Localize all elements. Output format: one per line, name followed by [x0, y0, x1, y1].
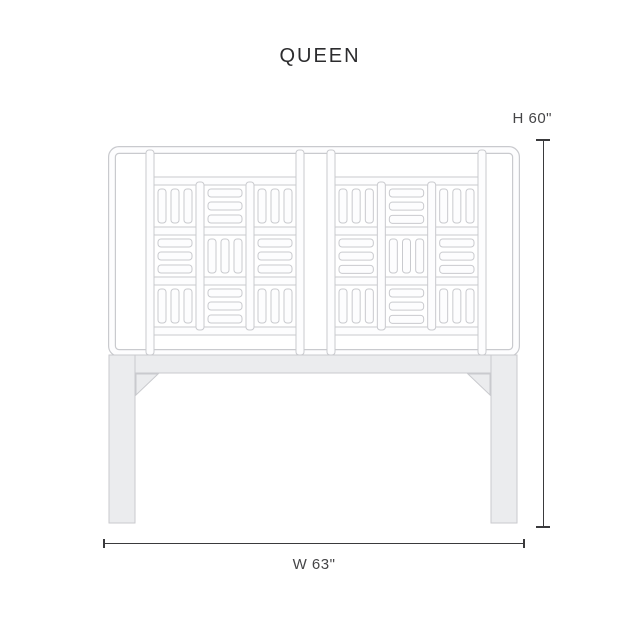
fretwork-bar-vertical — [234, 239, 242, 273]
fretwork-bar-horizontal — [440, 252, 474, 260]
panel-divider-vertical — [428, 182, 436, 330]
vertical-stile — [296, 150, 304, 355]
width-label: W 63" — [104, 556, 524, 573]
height-label: H 60" — [452, 110, 552, 127]
fretwork-bar-vertical — [184, 289, 192, 323]
panel-divider-horizontal — [333, 277, 480, 285]
fretwork-bar-horizontal — [158, 252, 192, 260]
fretwork-bar-vertical — [158, 289, 166, 323]
fretwork-bar-vertical — [339, 189, 347, 223]
fretwork-bar-horizontal — [389, 289, 423, 297]
apron-rail — [109, 355, 517, 373]
vertical-stile — [478, 150, 486, 355]
fretwork-bar-vertical — [389, 239, 397, 273]
fretwork-bar-horizontal — [208, 189, 242, 197]
fretwork-bar-vertical — [453, 289, 461, 323]
fretwork-bar-horizontal — [339, 265, 373, 273]
fretwork-bar-horizontal — [258, 265, 292, 273]
fretwork-bar-vertical — [352, 189, 360, 223]
panel-divider-horizontal — [152, 277, 298, 285]
right-leg — [491, 355, 517, 523]
panel-divider-vertical — [246, 182, 254, 330]
fretwork-bar-horizontal — [208, 215, 242, 223]
fretwork-bar-horizontal — [258, 252, 292, 260]
fretwork-bar-horizontal — [389, 215, 423, 223]
fretwork-bar-vertical — [208, 239, 216, 273]
fretwork-bar-vertical — [271, 189, 279, 223]
headboard-drawing — [0, 0, 640, 640]
fretwork-bar-horizontal — [208, 315, 242, 323]
size-diagram-page: QUEEN H 60" W 63" — [0, 0, 640, 640]
fretwork-bar-horizontal — [339, 239, 373, 247]
width-dimension-tick-left — [103, 539, 105, 548]
vertical-stile — [146, 150, 154, 355]
corner-brace-right — [468, 374, 490, 395]
panel-bottom-rail — [149, 327, 301, 335]
fretwork-bar-horizontal — [158, 265, 192, 273]
fretwork-bar-vertical — [403, 239, 411, 273]
panel-top-rail — [330, 177, 483, 185]
fretwork-bar-vertical — [339, 289, 347, 323]
fretwork-bar-vertical — [365, 289, 373, 323]
panel-top-rail — [149, 177, 301, 185]
panel-divider-horizontal — [333, 227, 480, 235]
fretwork-bar-vertical — [221, 239, 229, 273]
fretwork-bar-vertical — [352, 289, 360, 323]
fretwork-bar-vertical — [258, 289, 266, 323]
corner-brace-left — [136, 374, 158, 395]
fretwork-bar-horizontal — [208, 202, 242, 210]
fretwork-bar-vertical — [416, 239, 424, 273]
fretwork-bar-horizontal — [389, 189, 423, 197]
fretwork-bar-vertical — [171, 289, 179, 323]
panel-divider-vertical — [196, 182, 204, 330]
panel-divider-vertical — [377, 182, 385, 330]
fretwork-bar-horizontal — [208, 302, 242, 310]
fretwork-bar-vertical — [365, 189, 373, 223]
fretwork-bar-vertical — [284, 289, 292, 323]
height-dimension-tick-bottom — [536, 526, 550, 528]
fretwork-bar-horizontal — [389, 315, 423, 323]
fretwork-bar-vertical — [258, 189, 266, 223]
fretwork-bar-horizontal — [339, 252, 373, 260]
fretwork-bar-horizontal — [389, 302, 423, 310]
fretwork-bar-vertical — [466, 189, 474, 223]
width-dimension-line — [104, 543, 524, 544]
fretwork-bar-horizontal — [440, 239, 474, 247]
fretwork-bar-vertical — [158, 189, 166, 223]
fretwork-bar-vertical — [271, 289, 279, 323]
fretwork-bar-vertical — [184, 189, 192, 223]
fretwork-bar-horizontal — [389, 202, 423, 210]
height-dimension-tick-top — [536, 139, 550, 141]
fretwork-bar-vertical — [440, 289, 448, 323]
fretwork-bar-horizontal — [208, 289, 242, 297]
width-dimension-tick-right — [523, 539, 525, 548]
vertical-stile — [327, 150, 335, 355]
fretwork-bar-vertical — [440, 189, 448, 223]
height-dimension-line — [543, 140, 544, 527]
fretwork-bar-horizontal — [258, 239, 292, 247]
fretwork-bar-vertical — [284, 189, 292, 223]
fretwork-bar-horizontal — [158, 239, 192, 247]
left-leg — [109, 355, 135, 523]
fretwork-bar-horizontal — [440, 265, 474, 273]
panel-bottom-rail — [330, 327, 483, 335]
panel-divider-horizontal — [152, 227, 298, 235]
fretwork-bar-vertical — [453, 189, 461, 223]
fretwork-bar-vertical — [466, 289, 474, 323]
fretwork-bar-vertical — [171, 189, 179, 223]
